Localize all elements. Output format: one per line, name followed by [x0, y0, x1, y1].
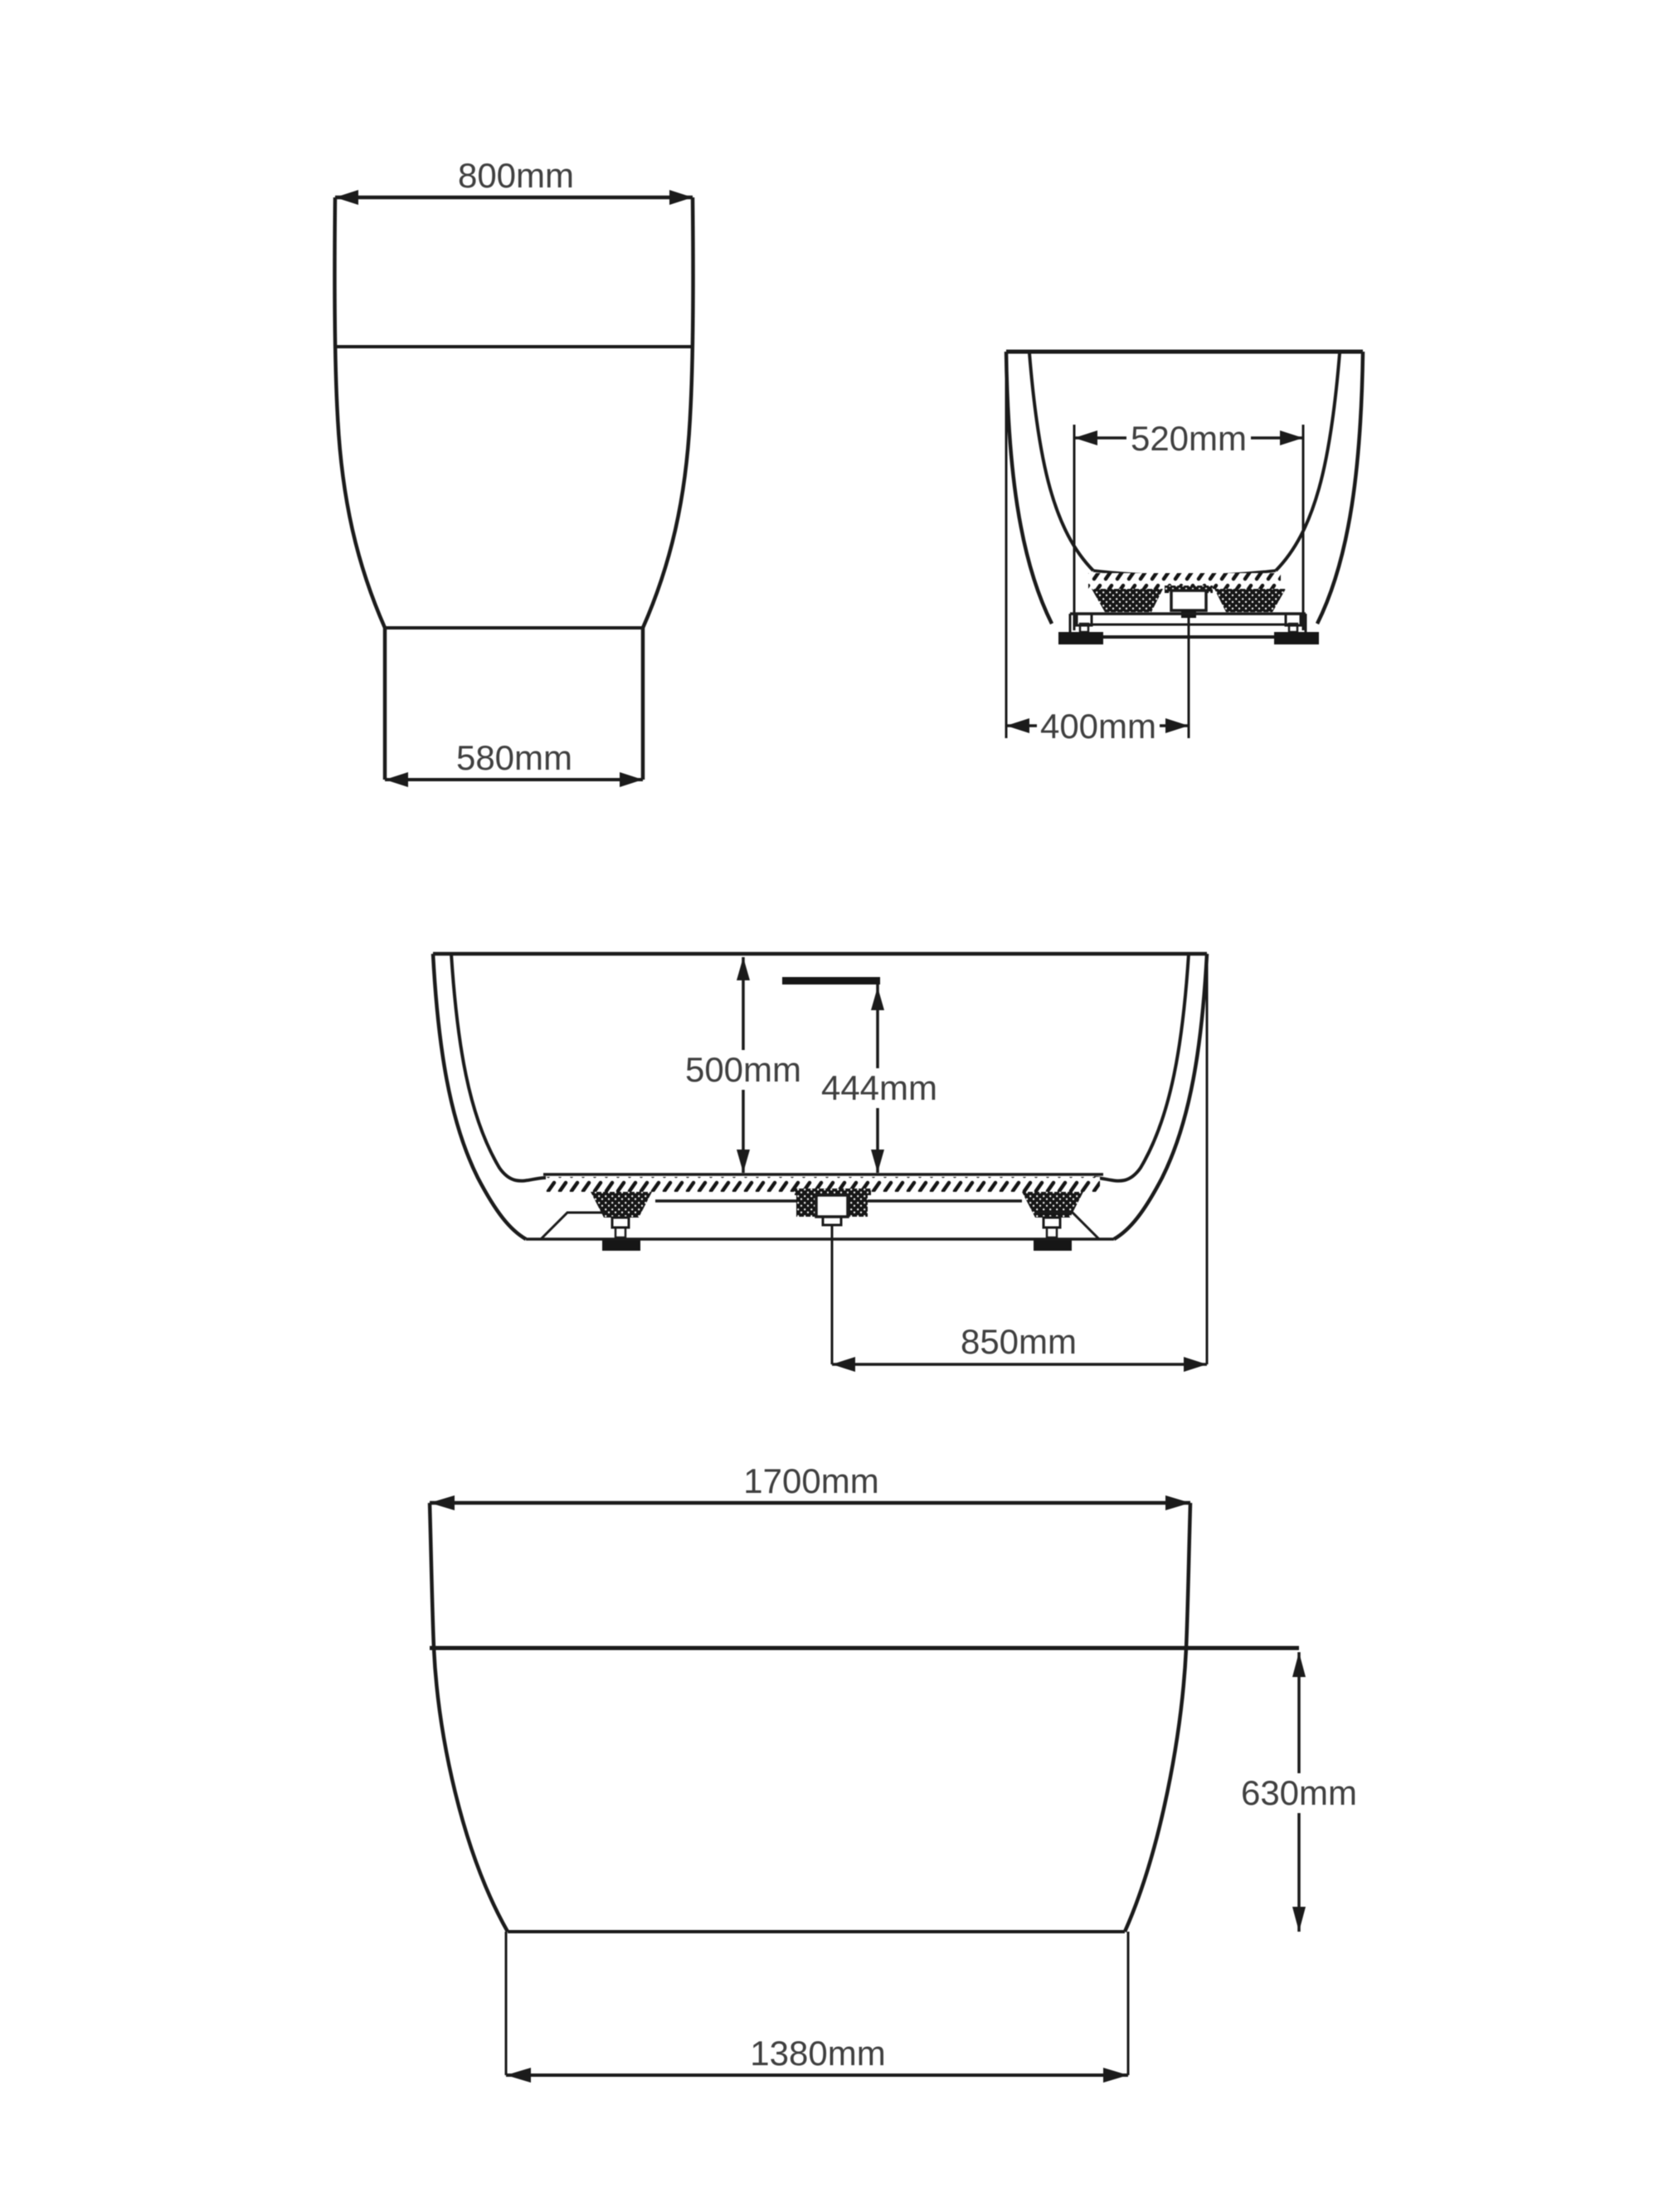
- foot-bolt-left: [615, 1228, 625, 1237]
- dimension-label-drain-to-end: 850mm: [961, 1322, 1077, 1361]
- foot-pad-right: [1274, 632, 1319, 644]
- arrow-down-icon: [1292, 1907, 1306, 1932]
- arrow-left-icon: [832, 1357, 855, 1372]
- dimension-label-drain-offset: 400mm: [1040, 707, 1156, 746]
- foam-block-left: [1092, 589, 1163, 612]
- foot-bolt-right: [1047, 1228, 1057, 1237]
- overflow-level-bar: [782, 977, 880, 984]
- arrow-left-icon: [335, 190, 358, 205]
- arrow-left-icon: [430, 1495, 455, 1510]
- arrow-right-icon: [620, 772, 643, 787]
- tub-outline-left: [334, 197, 385, 780]
- dimension-label-depth-overflow: 444mm: [821, 1068, 937, 1107]
- arrow-right-icon: [1103, 2068, 1128, 2083]
- dimension-label-inner-width: 520mm: [1131, 419, 1247, 458]
- foam-block-right: [1214, 589, 1286, 612]
- arrow-down-icon: [871, 1150, 884, 1173]
- dimension-label-base-width: 580mm: [456, 738, 572, 777]
- arrow-right-icon: [1165, 718, 1189, 733]
- arrow-down-icon: [737, 1150, 750, 1173]
- arrow-right-icon: [1165, 1495, 1190, 1510]
- arrow-left-icon: [385, 772, 408, 787]
- dimension-1700mm: 1700mm: [430, 1461, 1190, 1510]
- view-end-cross-section: 520mm 400mm: [1006, 352, 1363, 746]
- technical-drawing-page: 800mm 580mm: [0, 0, 1659, 2212]
- dimension-label-depth-rim: 500mm: [685, 1050, 801, 1089]
- drain-foam-right: [848, 1195, 868, 1217]
- foot-pad-right: [1034, 1239, 1072, 1251]
- dimension-630mm: 630mm: [1236, 1652, 1364, 1932]
- arrow-right-icon: [1280, 430, 1303, 445]
- dimension-400mm: 400mm: [1006, 352, 1189, 746]
- outer-wall-left: [433, 954, 526, 1239]
- inner-wall-left: [1029, 353, 1093, 571]
- dimension-label-height-waterline: 630mm: [1241, 1773, 1357, 1812]
- dimension-label-base-length: 1380mm: [750, 2034, 885, 2073]
- bathtub-dimension-drawing: 800mm 580mm: [0, 0, 1659, 2212]
- tub-outline-right: [1125, 1503, 1190, 1932]
- dimension-850mm: 850mm: [832, 957, 1207, 1372]
- drain-body: [816, 1195, 848, 1217]
- arrow-up-icon: [871, 987, 884, 1010]
- view-front-end-elevation: 800mm 580mm: [334, 156, 693, 787]
- tub-outline-right: [643, 197, 693, 780]
- dimension-800mm: 800mm: [335, 156, 693, 205]
- arrow-left-icon: [1006, 718, 1029, 733]
- dimension-500mm: 500mm: [679, 957, 808, 1173]
- arrow-up-icon: [1292, 1652, 1306, 1677]
- dimension-1380mm: 1380mm: [506, 1932, 1128, 2083]
- dimension-580mm: 580mm: [385, 738, 643, 787]
- dimension-label-top-width: 800mm: [458, 156, 574, 195]
- arrow-right-icon: [1184, 1357, 1207, 1372]
- view-side-cross-section: 500mm 444mm 850mm: [433, 954, 1207, 1372]
- dimension-label-overall-length: 1700mm: [743, 1461, 878, 1500]
- drain-outlet: [823, 1217, 841, 1225]
- outer-wall-right: [1317, 352, 1363, 624]
- arrow-left-icon: [506, 2068, 531, 2083]
- tub-outline-left: [430, 1503, 508, 1932]
- arrow-left-icon: [1074, 430, 1097, 445]
- inner-wall-right: [1276, 353, 1340, 571]
- outer-wall-right: [1114, 954, 1207, 1239]
- outer-wall-left: [1006, 352, 1052, 624]
- drain-foam-left: [796, 1195, 816, 1217]
- foot-pad-left: [602, 1239, 640, 1251]
- step-ledge-left: [541, 1213, 604, 1239]
- foot-stem-left: [612, 1218, 629, 1228]
- arrow-right-icon: [669, 190, 693, 205]
- foot-stem-right: [1044, 1218, 1060, 1228]
- drain-body: [1171, 591, 1206, 610]
- foot-pad-left: [1058, 632, 1103, 644]
- arrow-up-icon: [737, 957, 750, 980]
- view-side-elevation: 1700mm 630mm 1380mm: [430, 1461, 1364, 2083]
